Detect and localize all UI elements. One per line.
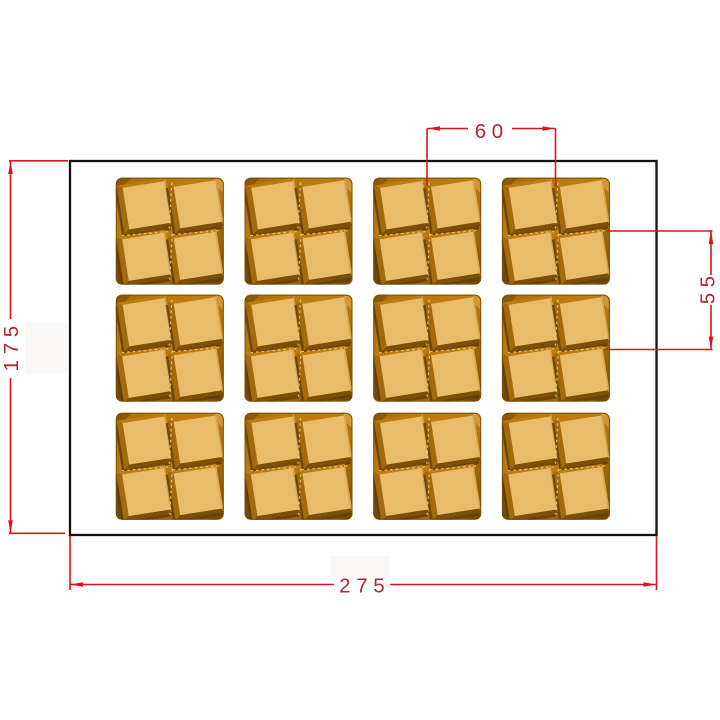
svg-text:60: 60 [475, 120, 507, 143]
svg-text:275: 275 [339, 575, 388, 598]
svg-text:175: 175 [0, 323, 23, 372]
svg-text:55: 55 [697, 273, 720, 305]
